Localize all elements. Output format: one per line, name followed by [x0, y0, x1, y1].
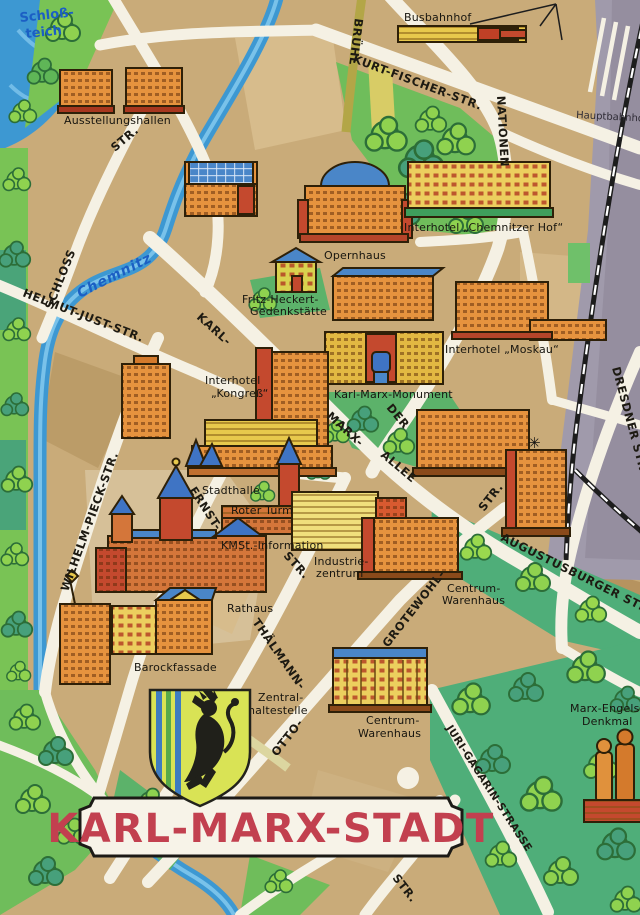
label-kongress-1: Interhotel — [205, 374, 260, 387]
label-kmst-information: KMSt.-Information — [221, 539, 324, 552]
city-map: KURT-FISCHER-STR. BRÜHL NATIONEN SCHLOSS… — [0, 0, 640, 915]
label-kongress-2: „Kongreß“ — [211, 387, 269, 400]
label-busbahnhof: Busbahnhof — [404, 11, 472, 24]
label-zentralhaltestelle-1: Zentral- — [258, 691, 303, 704]
label-industriezentrum-2: zentrum — [316, 567, 363, 580]
label-roter-turm: Roter Turm — [231, 504, 293, 517]
label-rathaus: Rathaus — [227, 602, 273, 615]
label-fritz-heckert-2: Gedenkstätte — [250, 305, 327, 318]
building-chemnitzer-hof — [405, 162, 553, 217]
label-zentralhaltestelle-2: haltestelle — [248, 704, 308, 717]
tram-loop — [397, 767, 419, 789]
label-moskau: Interhotel „Moskau“ — [445, 343, 559, 356]
label-marx-engels-2: Denkmal — [582, 715, 633, 728]
label-centrum-sued-2: Warenhaus — [358, 727, 421, 740]
postcard-map-karl-marx-stadt: KURT-FISCHER-STR. BRÜHL NATIONEN SCHLOSS… — [0, 0, 640, 915]
building-stadthalle — [186, 420, 336, 476]
city-title: KARL-MARX-STADT — [47, 806, 495, 852]
label-stadthalle: Stadthalle — [202, 484, 260, 497]
label-barockfassade: Barockfassade — [134, 661, 217, 674]
label-ausstellungshallen: Ausstellungshallen — [64, 114, 171, 127]
label-karl-marx-monument: Karl-Marx-Monument — [334, 388, 453, 401]
label-opernhaus: Opernhaus — [324, 249, 386, 262]
label-centrum-sued-1: Centrum- — [366, 714, 420, 727]
building-slab-north-of-monument — [333, 268, 443, 320]
building-karl-marx-monument — [325, 332, 443, 384]
building-hochhaus-star — [502, 450, 570, 536]
label-chemnitzer-hof: Interhotel „Chemnitzer Hof“ — [404, 221, 563, 234]
star-marker: ✳ — [528, 434, 541, 452]
label-centrum-nord-2: Warenhaus — [442, 594, 505, 607]
building-theater — [185, 162, 257, 216]
building-centrum-warenhaus-sued — [329, 648, 431, 712]
label-marx-engels-1: Marx-Engels- — [570, 702, 640, 715]
building-highrise-west — [122, 356, 170, 438]
title-banner: KARL-MARX-STADT — [47, 798, 495, 856]
